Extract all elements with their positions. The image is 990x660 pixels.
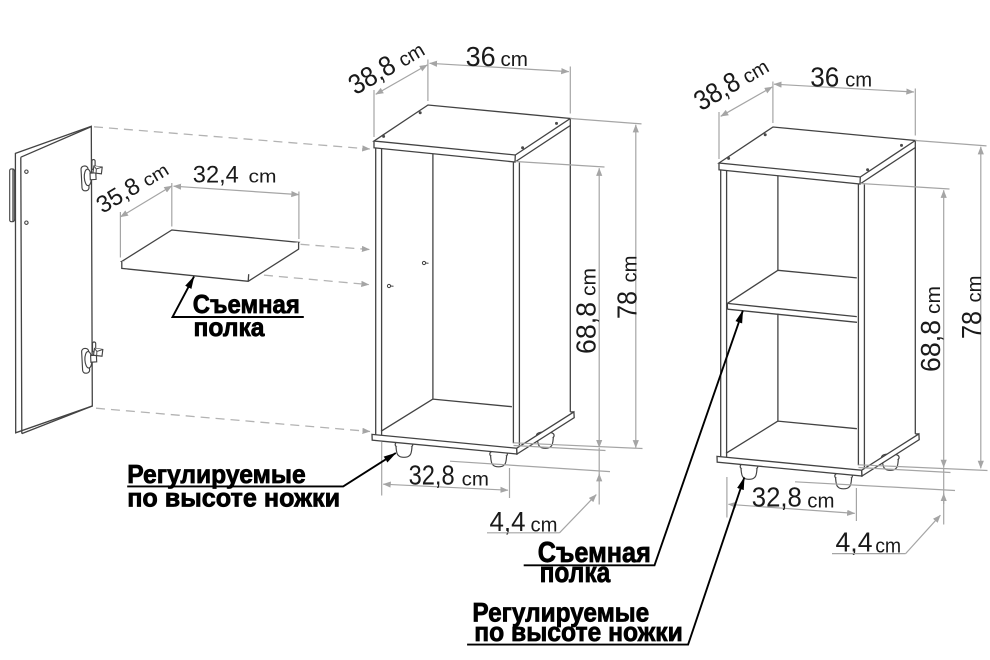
svg-text:78: 78 — [611, 291, 642, 319]
svg-text:78: 78 — [956, 311, 987, 339]
svg-text:68,8: 68,8 — [570, 302, 601, 354]
svg-text:32,8: 32,8 — [409, 459, 455, 490]
svg-text:по высоте ножки: по высоте ножки — [474, 617, 683, 647]
svg-text:cm: cm — [619, 256, 641, 283]
svg-text:cm: cm — [923, 286, 945, 314]
svg-text:cm: cm — [964, 276, 986, 303]
svg-text:cm: cm — [807, 491, 834, 513]
svg-text:32,8: 32,8 — [752, 481, 802, 512]
svg-text:cm: cm — [249, 167, 277, 187]
svg-text:32,4: 32,4 — [193, 162, 239, 189]
svg-text:4,4: 4,4 — [836, 527, 873, 558]
svg-text:cm: cm — [462, 469, 489, 491]
svg-text:полка: полка — [540, 557, 611, 589]
svg-text:36: 36 — [810, 61, 839, 92]
svg-text:cm: cm — [845, 69, 872, 91]
svg-text:cm: cm — [578, 268, 600, 296]
svg-text:cm: cm — [501, 49, 529, 71]
svg-text:68,8: 68,8 — [915, 320, 946, 372]
svg-text:cm: cm — [875, 536, 901, 558]
svg-text:36: 36 — [466, 41, 496, 72]
